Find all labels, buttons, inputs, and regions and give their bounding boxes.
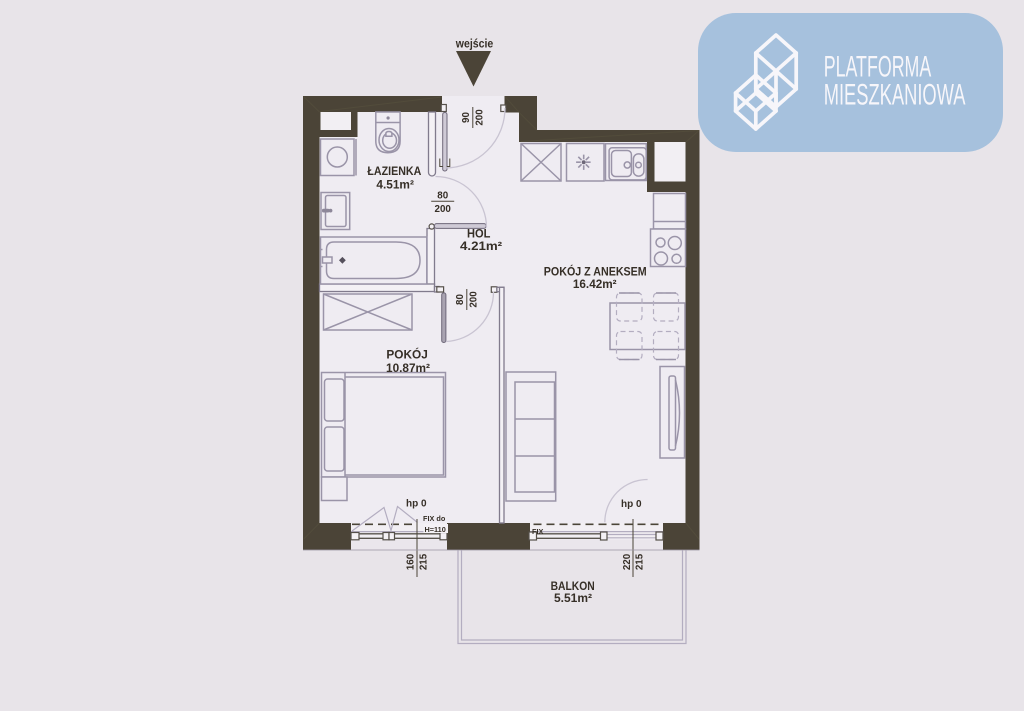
svg-text:5.51m²: 5.51m² bbox=[554, 591, 592, 605]
svg-text:hp 0: hp 0 bbox=[621, 499, 642, 510]
svg-text:80: 80 bbox=[455, 294, 466, 305]
svg-text:MIESZKANIOWA: MIESZKANIOWA bbox=[824, 78, 966, 111]
svg-text:200: 200 bbox=[435, 204, 452, 215]
svg-text:16.42m²: 16.42m² bbox=[573, 277, 617, 291]
svg-text:220: 220 bbox=[622, 553, 633, 570]
svg-text:FIX: FIX bbox=[532, 527, 543, 536]
svg-text:160: 160 bbox=[406, 553, 417, 570]
svg-text:wejście: wejście bbox=[455, 37, 494, 51]
svg-text:80: 80 bbox=[437, 191, 448, 202]
svg-text:4.51m²: 4.51m² bbox=[376, 178, 414, 192]
svg-text:ŁAZIENKA: ŁAZIENKA bbox=[367, 164, 421, 178]
svg-text:90: 90 bbox=[461, 112, 472, 123]
svg-text:POKÓJ: POKÓJ bbox=[386, 348, 427, 362]
svg-text:FIX do: FIX do bbox=[423, 514, 446, 523]
svg-text:200: 200 bbox=[468, 291, 479, 308]
svg-text:4.21m²: 4.21m² bbox=[460, 239, 502, 253]
svg-text:200: 200 bbox=[474, 109, 485, 126]
svg-text:215: 215 bbox=[418, 553, 429, 570]
svg-text:hp 0: hp 0 bbox=[406, 498, 427, 509]
svg-text:215: 215 bbox=[635, 553, 646, 570]
svg-text:H=110: H=110 bbox=[425, 525, 446, 534]
svg-text:10.87m²: 10.87m² bbox=[386, 361, 430, 375]
